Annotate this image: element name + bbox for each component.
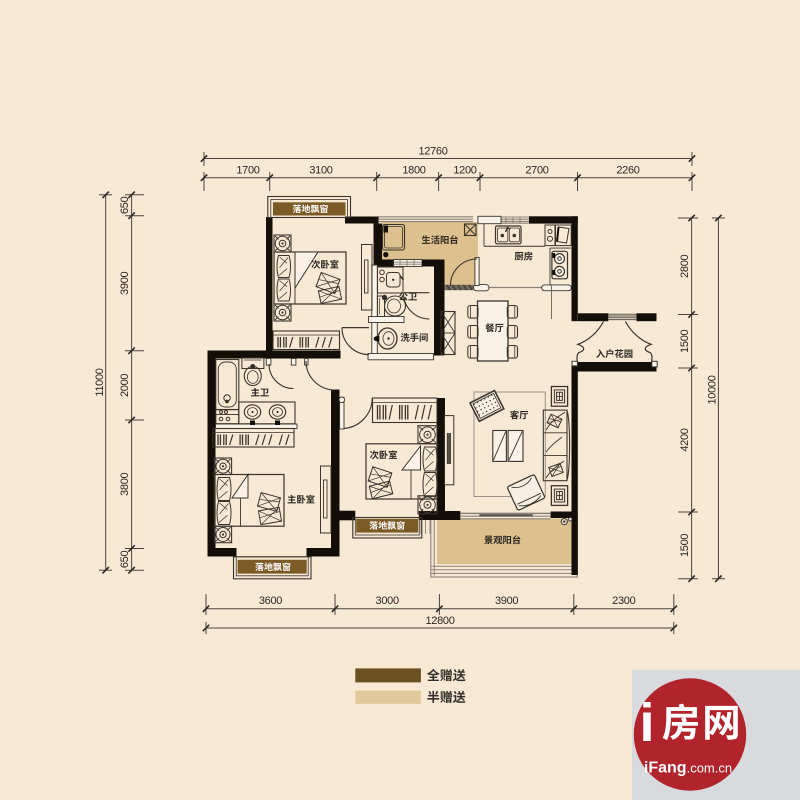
svg-text:3800: 3800 — [119, 472, 131, 495]
svg-text:650: 650 — [119, 550, 131, 568]
svg-text:i: i — [639, 693, 654, 753]
svg-text:1200: 1200 — [453, 164, 476, 176]
svg-text:1700: 1700 — [236, 164, 259, 176]
svg-text:12760: 12760 — [418, 145, 447, 157]
svg-text:650: 650 — [119, 196, 131, 214]
svg-text:10000: 10000 — [706, 375, 718, 404]
svg-text:2800: 2800 — [679, 254, 691, 277]
svg-text:1500: 1500 — [679, 534, 691, 557]
svg-text:3600: 3600 — [259, 595, 282, 607]
svg-text:2260: 2260 — [616, 164, 639, 176]
svg-text:3900: 3900 — [119, 271, 131, 294]
svg-text:3900: 3900 — [495, 595, 518, 607]
svg-text:1800: 1800 — [402, 164, 425, 176]
svg-text:2700: 2700 — [525, 164, 548, 176]
svg-text:3100: 3100 — [309, 164, 332, 176]
svg-text:2000: 2000 — [119, 374, 131, 397]
svg-text:iFang.com.cn: iFang.com.cn — [644, 760, 732, 777]
svg-text:12800: 12800 — [425, 615, 454, 627]
svg-text:1500: 1500 — [679, 329, 691, 352]
svg-text:11000: 11000 — [94, 368, 106, 396]
svg-text:3000: 3000 — [376, 595, 399, 607]
svg-text:4200: 4200 — [679, 428, 691, 451]
svg-text:2300: 2300 — [612, 595, 635, 607]
